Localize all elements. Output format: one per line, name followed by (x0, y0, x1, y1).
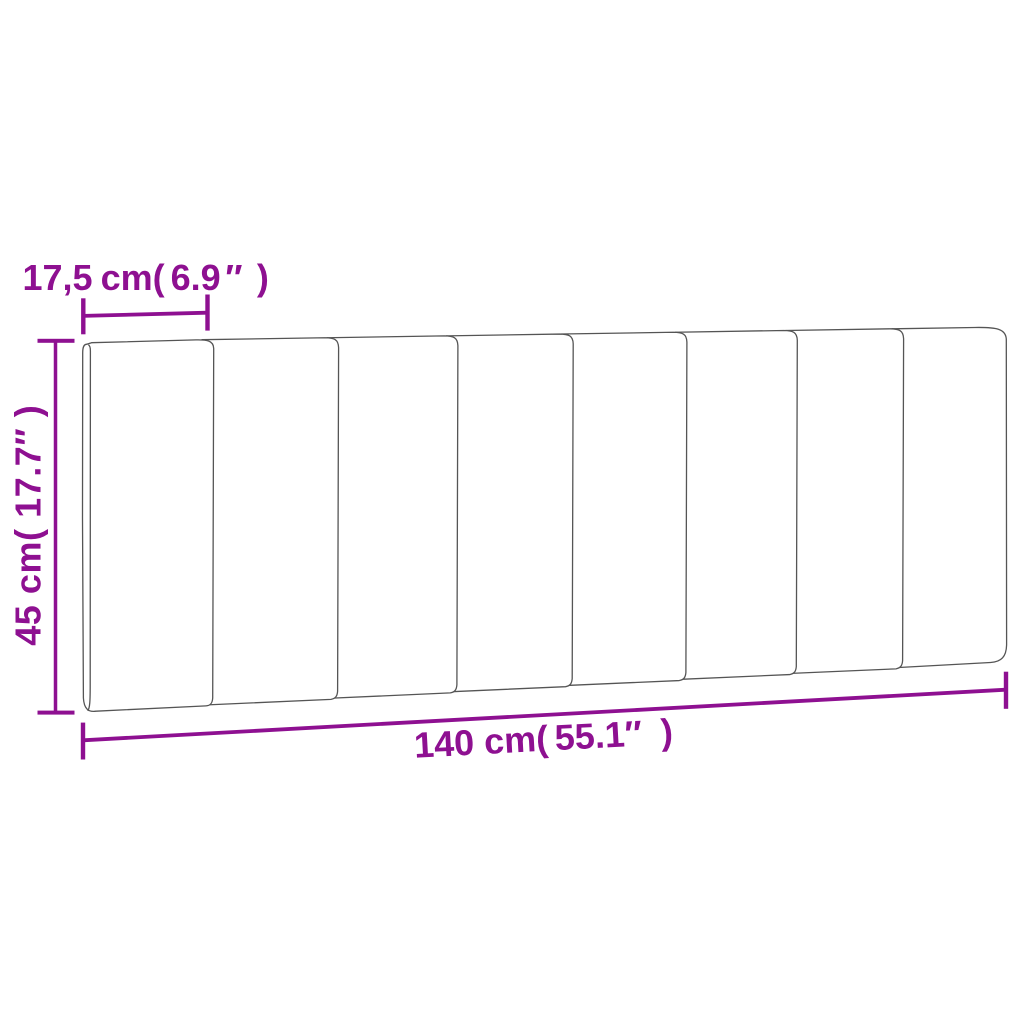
svg-text:45 cm( 17.7″ ): 45 cm( 17.7″ ) (8, 405, 49, 646)
svg-text:17,5 cm( 6.9 ″ ): 17,5 cm( 6.9 ″ ) (23, 257, 269, 298)
